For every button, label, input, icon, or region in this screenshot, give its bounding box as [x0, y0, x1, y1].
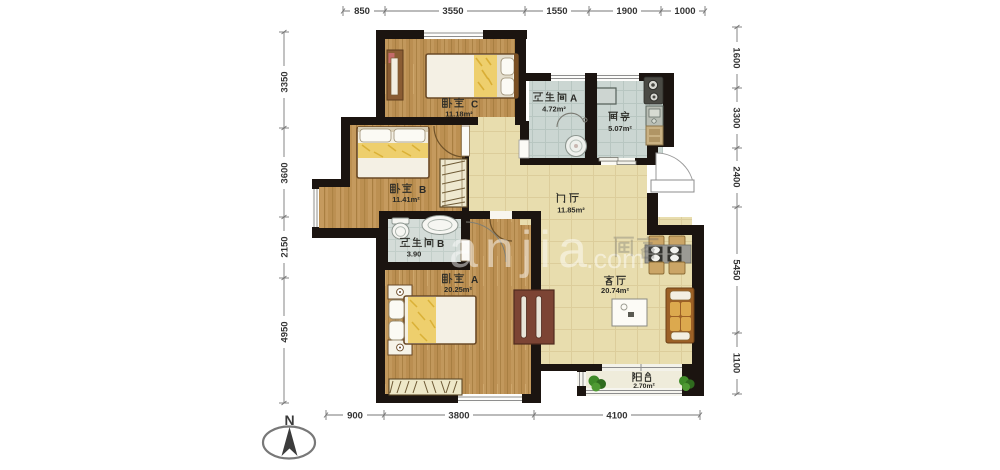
svg-text:3550: 3550: [442, 6, 463, 17]
svg-text:900: 900: [347, 411, 363, 422]
svg-text:1550: 1550: [546, 6, 567, 17]
svg-text:1000: 1000: [674, 6, 695, 17]
svg-text:3350: 3350: [280, 71, 291, 92]
svg-text:B: B: [419, 185, 426, 196]
svg-text:850: 850: [354, 6, 370, 17]
svg-text:1900: 1900: [616, 6, 637, 17]
svg-text:1600: 1600: [731, 47, 742, 68]
svg-text:20.25m²: 20.25m²: [444, 285, 472, 294]
svg-text:1100: 1100: [731, 353, 742, 374]
svg-text:3600: 3600: [280, 162, 291, 183]
svg-text:2150: 2150: [280, 236, 291, 257]
svg-text:A: A: [570, 94, 577, 105]
svg-text:3300: 3300: [731, 107, 742, 128]
svg-text:4.72m²: 4.72m²: [542, 105, 566, 114]
svg-text:11.18m²: 11.18m²: [445, 110, 473, 119]
svg-text:5450: 5450: [731, 259, 742, 280]
svg-text:2.70m²: 2.70m²: [633, 383, 655, 390]
svg-text:3.90: 3.90: [407, 250, 422, 259]
svg-text:B: B: [437, 239, 444, 250]
svg-text:2400: 2400: [731, 166, 742, 187]
svg-text:20.74m²: 20.74m²: [601, 286, 629, 295]
svg-text:11.41m²: 11.41m²: [392, 195, 420, 204]
svg-text:4100: 4100: [606, 411, 627, 422]
svg-text:11.85m²: 11.85m²: [557, 206, 585, 215]
svg-text:3800: 3800: [448, 411, 469, 422]
svg-text:anjia: anjia: [449, 221, 594, 279]
svg-text:5.07m²: 5.07m²: [608, 124, 632, 133]
svg-text:4950: 4950: [280, 321, 291, 342]
